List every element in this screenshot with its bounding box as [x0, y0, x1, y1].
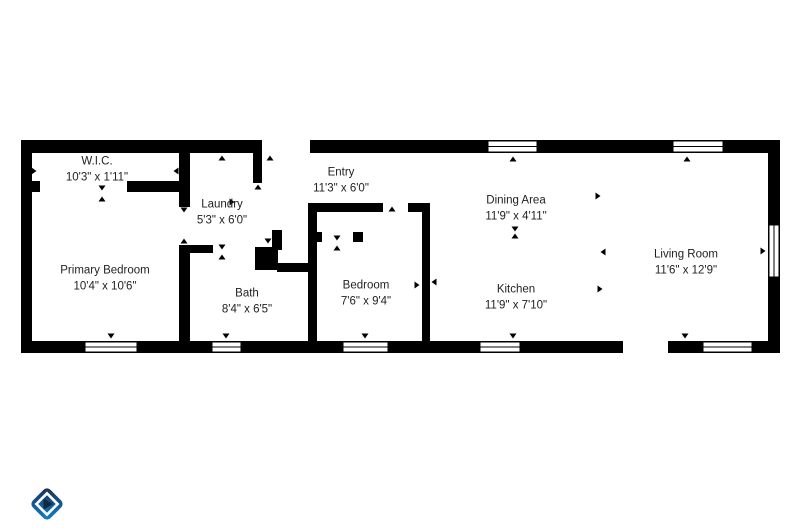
door-marker-icon	[415, 282, 420, 289]
wall	[179, 153, 190, 207]
wall	[422, 203, 430, 341]
wall	[272, 230, 282, 250]
door-marker-icon	[596, 193, 601, 200]
door-marker-icon	[99, 197, 106, 202]
door-marker-icon	[432, 279, 437, 286]
wall	[353, 232, 363, 242]
room-dimensions: 11'9" x 4'11"	[485, 209, 546, 225]
wall	[179, 245, 213, 253]
wall	[21, 140, 32, 353]
room-label-laundry: Laundry5'3" x 6'0"	[197, 198, 247, 229]
room-name: Primary Bedroom	[60, 264, 149, 280]
wall	[21, 140, 780, 153]
room-name: Bath	[222, 287, 272, 303]
door-marker-icon	[181, 239, 188, 244]
room-name: Dining Area	[485, 194, 546, 210]
room-dimensions: 11'9" x 7'10"	[485, 298, 547, 314]
door-marker-icon	[255, 185, 262, 190]
room-dimensions: 11'6" x 12'9"	[654, 263, 718, 279]
door-marker-icon	[362, 334, 369, 339]
room-label-kitchen: Kitchen11'9" x 7'10"	[485, 283, 547, 314]
door-marker-icon	[99, 186, 106, 191]
room-name: Kitchen	[485, 283, 547, 299]
door-marker-icon	[265, 239, 272, 244]
room-label-primary: Primary Bedroom10'4" x 10'6"	[60, 264, 149, 295]
room-name: Entry	[313, 166, 369, 182]
room-dimensions: 7'6" x 9'4"	[341, 294, 391, 310]
room-name: W.I.C.	[66, 155, 128, 171]
wall	[32, 181, 40, 192]
room-name: Living Room	[654, 248, 718, 264]
door-marker-icon	[684, 157, 691, 162]
door-marker-icon	[181, 208, 188, 213]
door-marker-icon	[219, 255, 226, 260]
door-marker-icon	[510, 334, 517, 339]
door-marker-icon	[512, 227, 519, 232]
room-label-bedroom: Bedroom7'6" x 9'4"	[341, 279, 391, 310]
door-marker-icon	[761, 248, 766, 255]
room-dimensions: 5'3" x 6'0"	[197, 213, 247, 229]
door-marker-icon	[601, 249, 606, 256]
door-marker-icon	[334, 246, 341, 251]
door-marker-icon	[32, 168, 37, 175]
wall	[255, 247, 278, 270]
door-opening	[623, 341, 668, 353]
wall	[308, 232, 322, 242]
room-name: Laundry	[197, 198, 247, 214]
door-marker-icon	[174, 168, 179, 175]
door-marker-icon	[682, 334, 689, 339]
door-marker-icon	[219, 156, 226, 161]
room-dimensions: 10'4" x 10'6"	[60, 279, 149, 295]
room-label-dining: Dining Area11'9" x 4'11"	[485, 194, 546, 225]
diamond-logo-icon	[29, 486, 64, 521]
wall	[253, 153, 262, 183]
room-name: Bedroom	[341, 279, 391, 295]
room-label-wic: W.I.C.10'3" x 1'11"	[66, 155, 128, 186]
door-marker-icon	[389, 207, 396, 212]
door-marker-icon	[267, 156, 274, 161]
door-marker-icon	[334, 236, 341, 241]
wall	[308, 203, 383, 212]
wall	[308, 203, 317, 341]
door-opening	[262, 140, 310, 153]
room-dimensions: 11'3" x 6'0"	[313, 181, 369, 197]
wall	[127, 181, 190, 192]
room-label-living: Living Room11'6" x 12'9"	[654, 248, 718, 279]
room-label-entry: Entry11'3" x 6'0"	[313, 166, 369, 197]
room-dimensions: 10'3" x 1'11"	[66, 170, 128, 186]
wall	[179, 245, 190, 341]
room-dimensions: 8'4" x 6'5"	[222, 302, 272, 318]
door-marker-icon	[219, 245, 226, 250]
door-marker-icon	[108, 334, 115, 339]
room-label-bath: Bath8'4" x 6'5"	[222, 287, 272, 318]
wall	[277, 263, 310, 272]
floorplan-page: W.I.C.10'3" x 1'11"Laundry5'3" x 6'0"Ent…	[0, 0, 800, 530]
door-marker-icon	[510, 157, 517, 162]
brand-logo	[26, 483, 68, 525]
door-marker-icon	[223, 334, 230, 339]
door-marker-icon	[598, 286, 603, 293]
door-marker-icon	[512, 234, 519, 239]
